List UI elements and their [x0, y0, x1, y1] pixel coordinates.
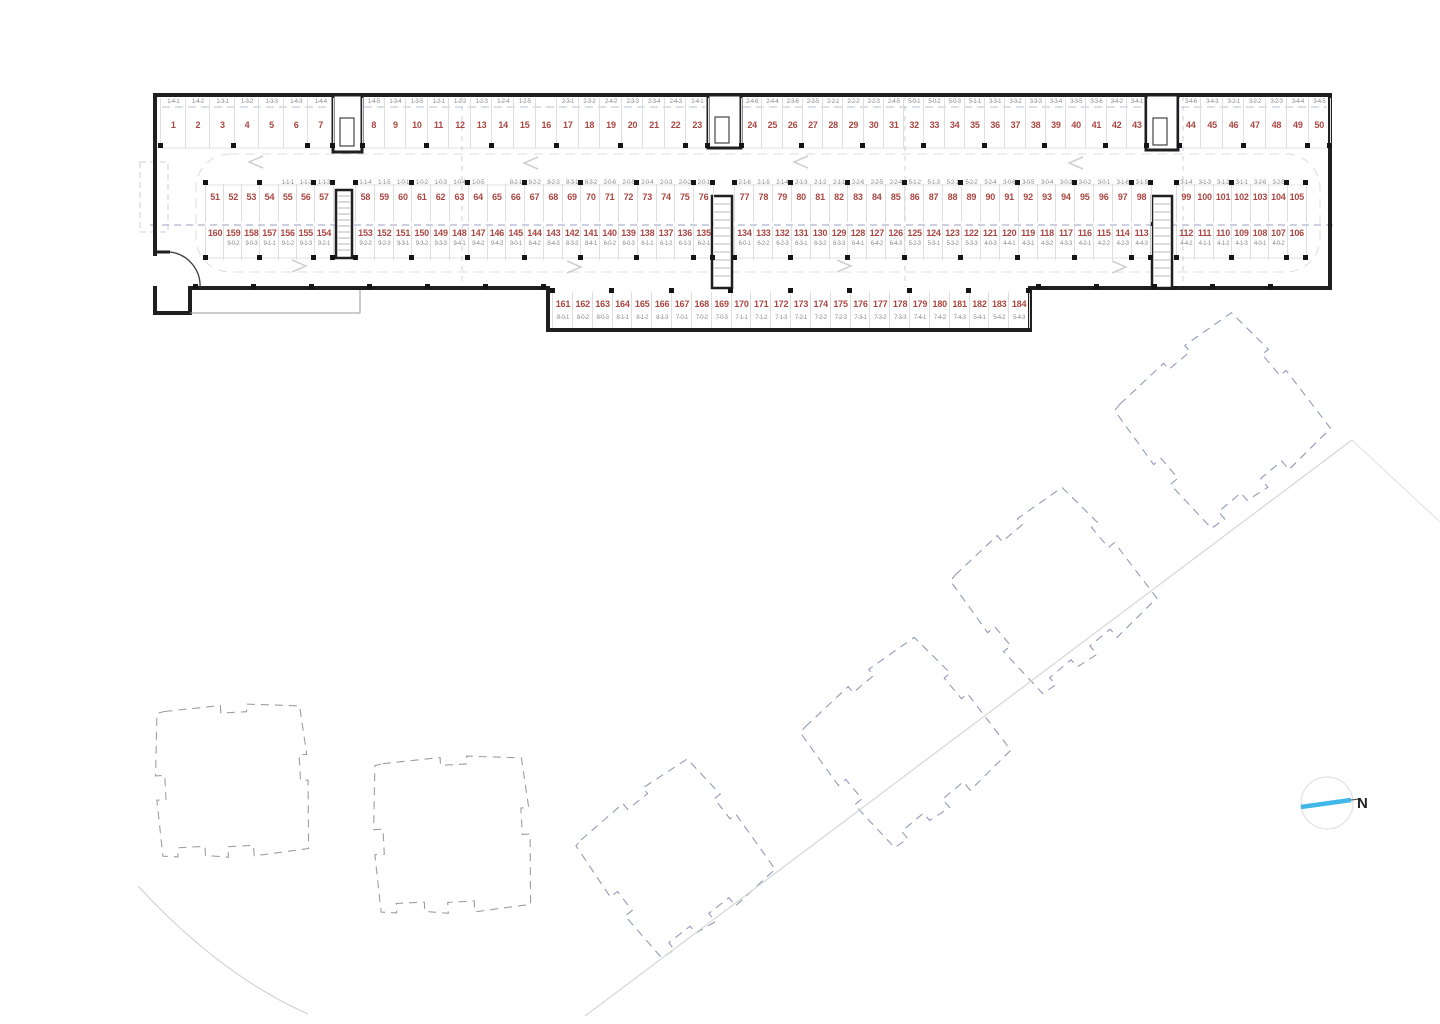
parking-space-82: 822-1-1 — [829, 184, 849, 222]
parking-space-58: 581-1-4 — [355, 184, 375, 222]
column-marker — [360, 143, 365, 148]
column-marker — [305, 143, 310, 148]
parking-space-83: 832-2-6 — [847, 184, 867, 222]
space-number: 63 — [450, 192, 469, 202]
space-number: 146 — [488, 228, 507, 238]
parking-space-66: 668-2-1 — [505, 184, 525, 222]
space-number: 104 — [1269, 192, 1287, 202]
column-marker — [1103, 143, 1108, 148]
column-marker — [1241, 143, 1246, 148]
column-marker — [409, 255, 414, 260]
parking-space-171: 1717-1-2 — [750, 292, 771, 328]
space-number: 43 — [1127, 120, 1147, 130]
space-number: 66 — [506, 192, 525, 202]
space-number: 10 — [406, 120, 428, 130]
space-number: 94 — [1056, 192, 1075, 202]
space-number: 105 — [1288, 192, 1306, 202]
parking-space-89: 895-2-2 — [961, 184, 981, 222]
parking-space-92: 923-0-5 — [1018, 184, 1038, 222]
space-number: 73 — [638, 192, 657, 202]
column-marker — [1174, 180, 1179, 185]
space-number: 114 — [1113, 228, 1132, 238]
space-number: 93 — [1038, 192, 1057, 202]
column-marker — [1094, 284, 1099, 289]
space-number: 50 — [1309, 120, 1330, 130]
column-marker — [465, 180, 470, 185]
space-number: 159 — [224, 228, 242, 238]
space-number: 139 — [619, 228, 638, 238]
space-number: 128 — [848, 228, 867, 238]
space-number: 78 — [754, 192, 773, 202]
space-number: 34 — [945, 120, 965, 130]
column-marker — [710, 180, 715, 185]
space-number: 183 — [989, 299, 1009, 309]
space-number: 11 — [428, 120, 450, 130]
parking-space-84: 842-2-5 — [866, 184, 886, 222]
space-number: 135 — [694, 228, 713, 238]
space-number: 86 — [905, 192, 924, 202]
parking-space-102: 1023-1-1 — [1231, 184, 1250, 222]
space-number: 59 — [375, 192, 394, 202]
column-marker — [860, 143, 865, 148]
column-marker — [1036, 284, 1041, 289]
space-number: 90 — [981, 192, 1000, 202]
parking-space-81: 812-1-2 — [810, 184, 830, 222]
space-number: 24 — [742, 120, 762, 130]
space-number: 46 — [1223, 120, 1244, 130]
space-number: 115 — [1094, 228, 1113, 238]
space-number: 17 — [557, 120, 579, 130]
parking-space-101: 1013-1-2 — [1213, 184, 1232, 222]
column-marker — [1015, 255, 1020, 260]
space-number: 77 — [735, 192, 754, 202]
column-marker — [609, 288, 614, 293]
parking-space-100: 1003-1-3 — [1194, 184, 1213, 222]
parking-space-88: 885-2-1 — [942, 184, 962, 222]
space-number: 143 — [544, 228, 563, 238]
parking-space-104: 1043-2-5 — [1268, 184, 1287, 222]
column-marker — [231, 143, 236, 148]
space-number: 20 — [622, 120, 644, 130]
space-number: 58 — [356, 192, 375, 202]
column-marker — [1327, 143, 1332, 148]
column-marker — [1174, 255, 1179, 260]
space-number: 6 — [284, 120, 309, 130]
space-number: 25 — [762, 120, 782, 130]
space-number: 70 — [581, 192, 600, 202]
space-number: 156 — [279, 228, 297, 238]
column-marker — [1177, 143, 1182, 148]
parking-space-98: 983-1-5 — [1131, 184, 1152, 222]
space-number: 181 — [950, 299, 970, 309]
parking-stalls: 11-4-121-4-231-3-141-3-251-3-361-4-371-4… — [0, 0, 1440, 1024]
column-marker — [618, 143, 623, 148]
unit-code: 6-2-1 — [688, 241, 719, 248]
column-marker — [1229, 180, 1234, 185]
space-number: 57 — [315, 192, 333, 202]
space-number: 158 — [242, 228, 260, 238]
column-marker — [683, 143, 688, 148]
column-marker — [257, 180, 262, 185]
space-number: 30 — [864, 120, 884, 130]
space-number: 102 — [1232, 192, 1250, 202]
space-number: 174 — [811, 299, 831, 309]
space-number: 40 — [1066, 120, 1086, 130]
column-marker — [1148, 255, 1153, 260]
parking-space-164: 1648-1-1 — [612, 292, 633, 328]
column-marker — [958, 180, 963, 185]
space-number: 16 — [536, 120, 558, 130]
column-marker — [710, 255, 715, 260]
parking-space-60: 601-0-1 — [393, 184, 413, 222]
parking-space-94: 943-0-3 — [1055, 184, 1075, 222]
column-marker — [1042, 143, 1047, 148]
column-marker — [1148, 180, 1153, 185]
space-number: 127 — [867, 228, 886, 238]
parking-space-180: 1807-4-2 — [929, 292, 950, 328]
parking-space-161: 1618-0-1 — [552, 292, 573, 328]
parking-space-77: 772-1-6 — [734, 184, 754, 222]
unit-code: 5-4-3 — [1003, 315, 1035, 322]
space-number: 12 — [449, 120, 471, 130]
column-marker — [1303, 255, 1308, 260]
space-number: 44 — [1180, 120, 1201, 130]
space-number: 168 — [692, 299, 712, 309]
space-number: 47 — [1244, 120, 1265, 130]
column-marker — [669, 288, 674, 293]
space-number: 176 — [851, 299, 871, 309]
parking-space-61: 611-0-2 — [411, 184, 431, 222]
space-number: 79 — [773, 192, 792, 202]
parking-space-91: 913-0-6 — [999, 184, 1019, 222]
space-number: 184 — [1009, 299, 1029, 309]
parking-space-51: 51 — [205, 184, 224, 222]
space-number: 107 — [1269, 228, 1287, 238]
parking-space-43: 433-4-1 — [1126, 98, 1148, 148]
parking-space-179: 1797-4-1 — [909, 292, 930, 328]
space-number: 9 — [385, 120, 407, 130]
space-number: 65 — [488, 192, 507, 202]
space-number: 74 — [657, 192, 676, 202]
space-number: 149 — [431, 228, 450, 238]
space-number: 67 — [525, 192, 544, 202]
parking-space-63: 631-0-4 — [449, 184, 469, 222]
parking-space-73: 732-0-4 — [637, 184, 657, 222]
parking-space-72: 722-0-5 — [618, 184, 638, 222]
column-marker — [251, 284, 256, 289]
parking-space-99: 993-1-4 — [1176, 184, 1195, 222]
space-number: 120 — [1000, 228, 1019, 238]
column-marker — [522, 255, 527, 260]
parking-space-62: 621-0-3 — [430, 184, 450, 222]
space-number: 161 — [553, 299, 573, 309]
column-marker — [788, 180, 793, 185]
column-marker — [958, 255, 963, 260]
parking-space-50: 503-4-5 — [1308, 98, 1331, 148]
space-number: 100 — [1195, 192, 1213, 202]
space-number: 33 — [924, 120, 944, 130]
space-number: 2 — [186, 120, 211, 130]
space-number: 96 — [1094, 192, 1113, 202]
space-number: 19 — [600, 120, 622, 130]
parking-space-105: 105 — [1287, 184, 1307, 222]
space-number: 28 — [823, 120, 843, 130]
unit-code: 3-4-5 — [1303, 99, 1336, 106]
space-number: 31 — [884, 120, 904, 130]
space-number: 164 — [613, 299, 633, 309]
space-number: 106 — [1288, 228, 1306, 238]
space-number: 166 — [652, 299, 672, 309]
column-marker — [691, 180, 696, 185]
space-number: 169 — [712, 299, 732, 309]
column-marker — [705, 143, 710, 148]
column-marker — [424, 143, 429, 148]
space-number: 76 — [694, 192, 713, 202]
column-marker — [541, 284, 546, 289]
space-number: 154 — [315, 228, 333, 238]
space-number: 162 — [573, 299, 593, 309]
space-number: 137 — [657, 228, 676, 238]
parking-space-55: 551-1-1 — [278, 184, 297, 222]
space-number: 108 — [1251, 228, 1269, 238]
space-number: 111 — [1195, 228, 1213, 238]
column-marker — [1015, 180, 1020, 185]
parking-space-174: 1747-2-2 — [810, 292, 831, 328]
parking-space-182: 1825-4-1 — [969, 292, 990, 328]
space-number: 21 — [643, 120, 665, 130]
column-marker — [1284, 255, 1289, 260]
space-number: 80 — [792, 192, 811, 202]
column-marker — [732, 255, 737, 260]
space-number: 148 — [450, 228, 469, 238]
space-number: 8 — [363, 120, 385, 130]
space-number: 48 — [1266, 120, 1287, 130]
parking-space-80: 802-1-3 — [791, 184, 811, 222]
space-number: 171 — [751, 299, 771, 309]
column-marker — [367, 284, 372, 289]
space-number: 167 — [672, 299, 692, 309]
space-number: 112 — [1177, 228, 1195, 238]
space-number: 42 — [1107, 120, 1127, 130]
space-number: 124 — [924, 228, 943, 238]
space-number: 157 — [260, 228, 278, 238]
space-number: 172 — [771, 299, 791, 309]
column-marker — [1303, 180, 1308, 185]
space-number: 150 — [412, 228, 431, 238]
unit-code: 9-2-1 — [309, 241, 339, 248]
parking-space-56: 561-1-2 — [296, 184, 315, 222]
column-marker — [311, 180, 316, 185]
parking-space-69: 698-3-1 — [562, 184, 582, 222]
column-marker — [907, 288, 912, 293]
space-number: 56 — [297, 192, 315, 202]
parking-space-95: 953-0-2 — [1074, 184, 1094, 222]
column-marker — [634, 255, 639, 260]
parking-space-166: 1668-1-3 — [651, 292, 672, 328]
space-number: 98 — [1132, 192, 1151, 202]
space-number: 130 — [811, 228, 830, 238]
space-number: 23 — [686, 120, 708, 130]
parking-space-168: 1687-0-2 — [691, 292, 712, 328]
space-number: 151 — [394, 228, 413, 238]
space-number: 64 — [469, 192, 488, 202]
column-marker — [1268, 284, 1273, 289]
space-number: 69 — [563, 192, 582, 202]
space-number: 173 — [791, 299, 811, 309]
parking-space-78: 782-1-5 — [753, 184, 773, 222]
space-number: 82 — [830, 192, 849, 202]
space-number: 51 — [206, 192, 224, 202]
parking-space-87: 875-1-3 — [923, 184, 943, 222]
space-number: 123 — [943, 228, 962, 238]
column-marker — [1144, 143, 1149, 148]
column-marker — [1305, 143, 1310, 148]
space-number: 147 — [469, 228, 488, 238]
space-number: 14 — [492, 120, 514, 130]
column-marker — [578, 180, 583, 185]
space-number: 52 — [224, 192, 242, 202]
column-marker — [1129, 180, 1134, 185]
parking-space-65: 65 — [487, 184, 507, 222]
column-marker — [193, 284, 198, 289]
space-number: 89 — [962, 192, 981, 202]
space-number: 180 — [930, 299, 950, 309]
space-number: 88 — [943, 192, 962, 202]
parking-space-165: 1658-1-2 — [631, 292, 652, 328]
unit-code: 3-4-1 — [1121, 99, 1153, 106]
north-label: N — [1357, 795, 1368, 812]
space-number: 62 — [431, 192, 450, 202]
space-number: 55 — [279, 192, 297, 202]
column-marker — [1152, 284, 1157, 289]
column-marker — [353, 255, 358, 260]
column-marker — [353, 180, 358, 185]
space-number: 41 — [1086, 120, 1106, 130]
column-marker — [203, 180, 208, 185]
space-number: 118 — [1038, 228, 1057, 238]
column-marker — [409, 180, 414, 185]
space-number: 4 — [235, 120, 260, 130]
column-marker — [203, 255, 208, 260]
space-number: 141 — [581, 228, 600, 238]
column-marker — [425, 284, 430, 289]
space-number: 37 — [1005, 120, 1025, 130]
space-number: 85 — [886, 192, 905, 202]
parking-space-75: 752-0-2 — [674, 184, 694, 222]
space-number: 99 — [1177, 192, 1195, 202]
unit-code: 4-4-3 — [1126, 241, 1157, 248]
parking-space-184: 1845-4-3 — [1008, 292, 1030, 328]
space-number: 81 — [811, 192, 830, 202]
space-number: 32 — [904, 120, 924, 130]
column-marker — [732, 180, 737, 185]
parking-floor-plan: 11-4-121-4-231-3-141-3-251-3-361-4-371-4… — [0, 0, 1440, 1024]
space-number: 35 — [965, 120, 985, 130]
space-number: 27 — [803, 120, 823, 130]
parking-space-85: 852-2-4 — [885, 184, 905, 222]
space-number: 145 — [506, 228, 525, 238]
space-number: 144 — [525, 228, 544, 238]
space-number: 134 — [735, 228, 754, 238]
column-marker — [847, 288, 852, 293]
space-number: 38 — [1026, 120, 1046, 130]
parking-space-183: 1835-4-2 — [988, 292, 1009, 328]
column-marker — [902, 255, 907, 260]
space-number: 92 — [1019, 192, 1038, 202]
space-number: 54 — [260, 192, 278, 202]
space-number: 177 — [870, 299, 890, 309]
parking-space-170: 1707-1-1 — [731, 292, 752, 328]
space-number: 121 — [981, 228, 1000, 238]
column-marker — [966, 288, 971, 293]
column-marker — [799, 143, 804, 148]
parking-space-57: 571-1-3 — [314, 184, 334, 222]
space-number: 136 — [675, 228, 694, 238]
parking-space-163: 1638-0-3 — [592, 292, 613, 328]
parking-space-169: 1697-0-3 — [711, 292, 732, 328]
parking-space-23: 232-4-1 — [685, 98, 709, 148]
column-marker — [1284, 180, 1289, 185]
space-number: 155 — [297, 228, 315, 238]
space-number: 126 — [886, 228, 905, 238]
parking-space-86: 865-1-2 — [904, 184, 924, 222]
column-marker — [1026, 288, 1031, 293]
column-marker — [634, 180, 639, 185]
space-number: 97 — [1113, 192, 1132, 202]
parking-space-177: 1777-3-2 — [869, 292, 890, 328]
space-number: 3 — [210, 120, 235, 130]
column-marker — [1210, 284, 1215, 289]
space-number: 152 — [375, 228, 394, 238]
space-number: 182 — [970, 299, 990, 309]
column-marker — [1229, 255, 1234, 260]
space-number: 116 — [1075, 228, 1094, 238]
column-marker — [330, 255, 335, 260]
parking-space-68: 688-2-3 — [543, 184, 563, 222]
space-number: 140 — [600, 228, 619, 238]
space-number: 75 — [675, 192, 694, 202]
column-marker — [1129, 255, 1134, 260]
parking-space-7: 71-4-4 — [307, 98, 334, 148]
space-number: 45 — [1201, 120, 1222, 130]
column-marker — [257, 255, 262, 260]
space-number: 142 — [563, 228, 582, 238]
parking-space-74: 742-0-3 — [656, 184, 676, 222]
space-number: 1 — [161, 120, 186, 130]
column-marker — [845, 180, 850, 185]
space-number: 15 — [514, 120, 536, 130]
space-number: 60 — [394, 192, 413, 202]
parking-space-90: 903-2-4 — [980, 184, 1000, 222]
column-marker — [309, 284, 314, 289]
space-number: 179 — [910, 299, 930, 309]
space-number: 175 — [831, 299, 851, 309]
column-marker — [554, 143, 559, 148]
parking-space-54: 54 — [259, 184, 278, 222]
parking-space-15: 151-2-5 — [513, 98, 536, 148]
parking-space-70: 708-3-2 — [580, 184, 600, 222]
parking-space-76: 762-0-1 — [693, 184, 714, 222]
parking-space-103: 1033-2-6 — [1250, 184, 1269, 222]
space-number: 138 — [638, 228, 657, 238]
parking-space-175: 1757-2-3 — [830, 292, 851, 328]
space-number: 129 — [830, 228, 849, 238]
column-marker — [578, 255, 583, 260]
space-number: 178 — [890, 299, 910, 309]
space-number: 26 — [783, 120, 803, 130]
space-number: 22 — [665, 120, 687, 130]
space-number: 87 — [924, 192, 943, 202]
